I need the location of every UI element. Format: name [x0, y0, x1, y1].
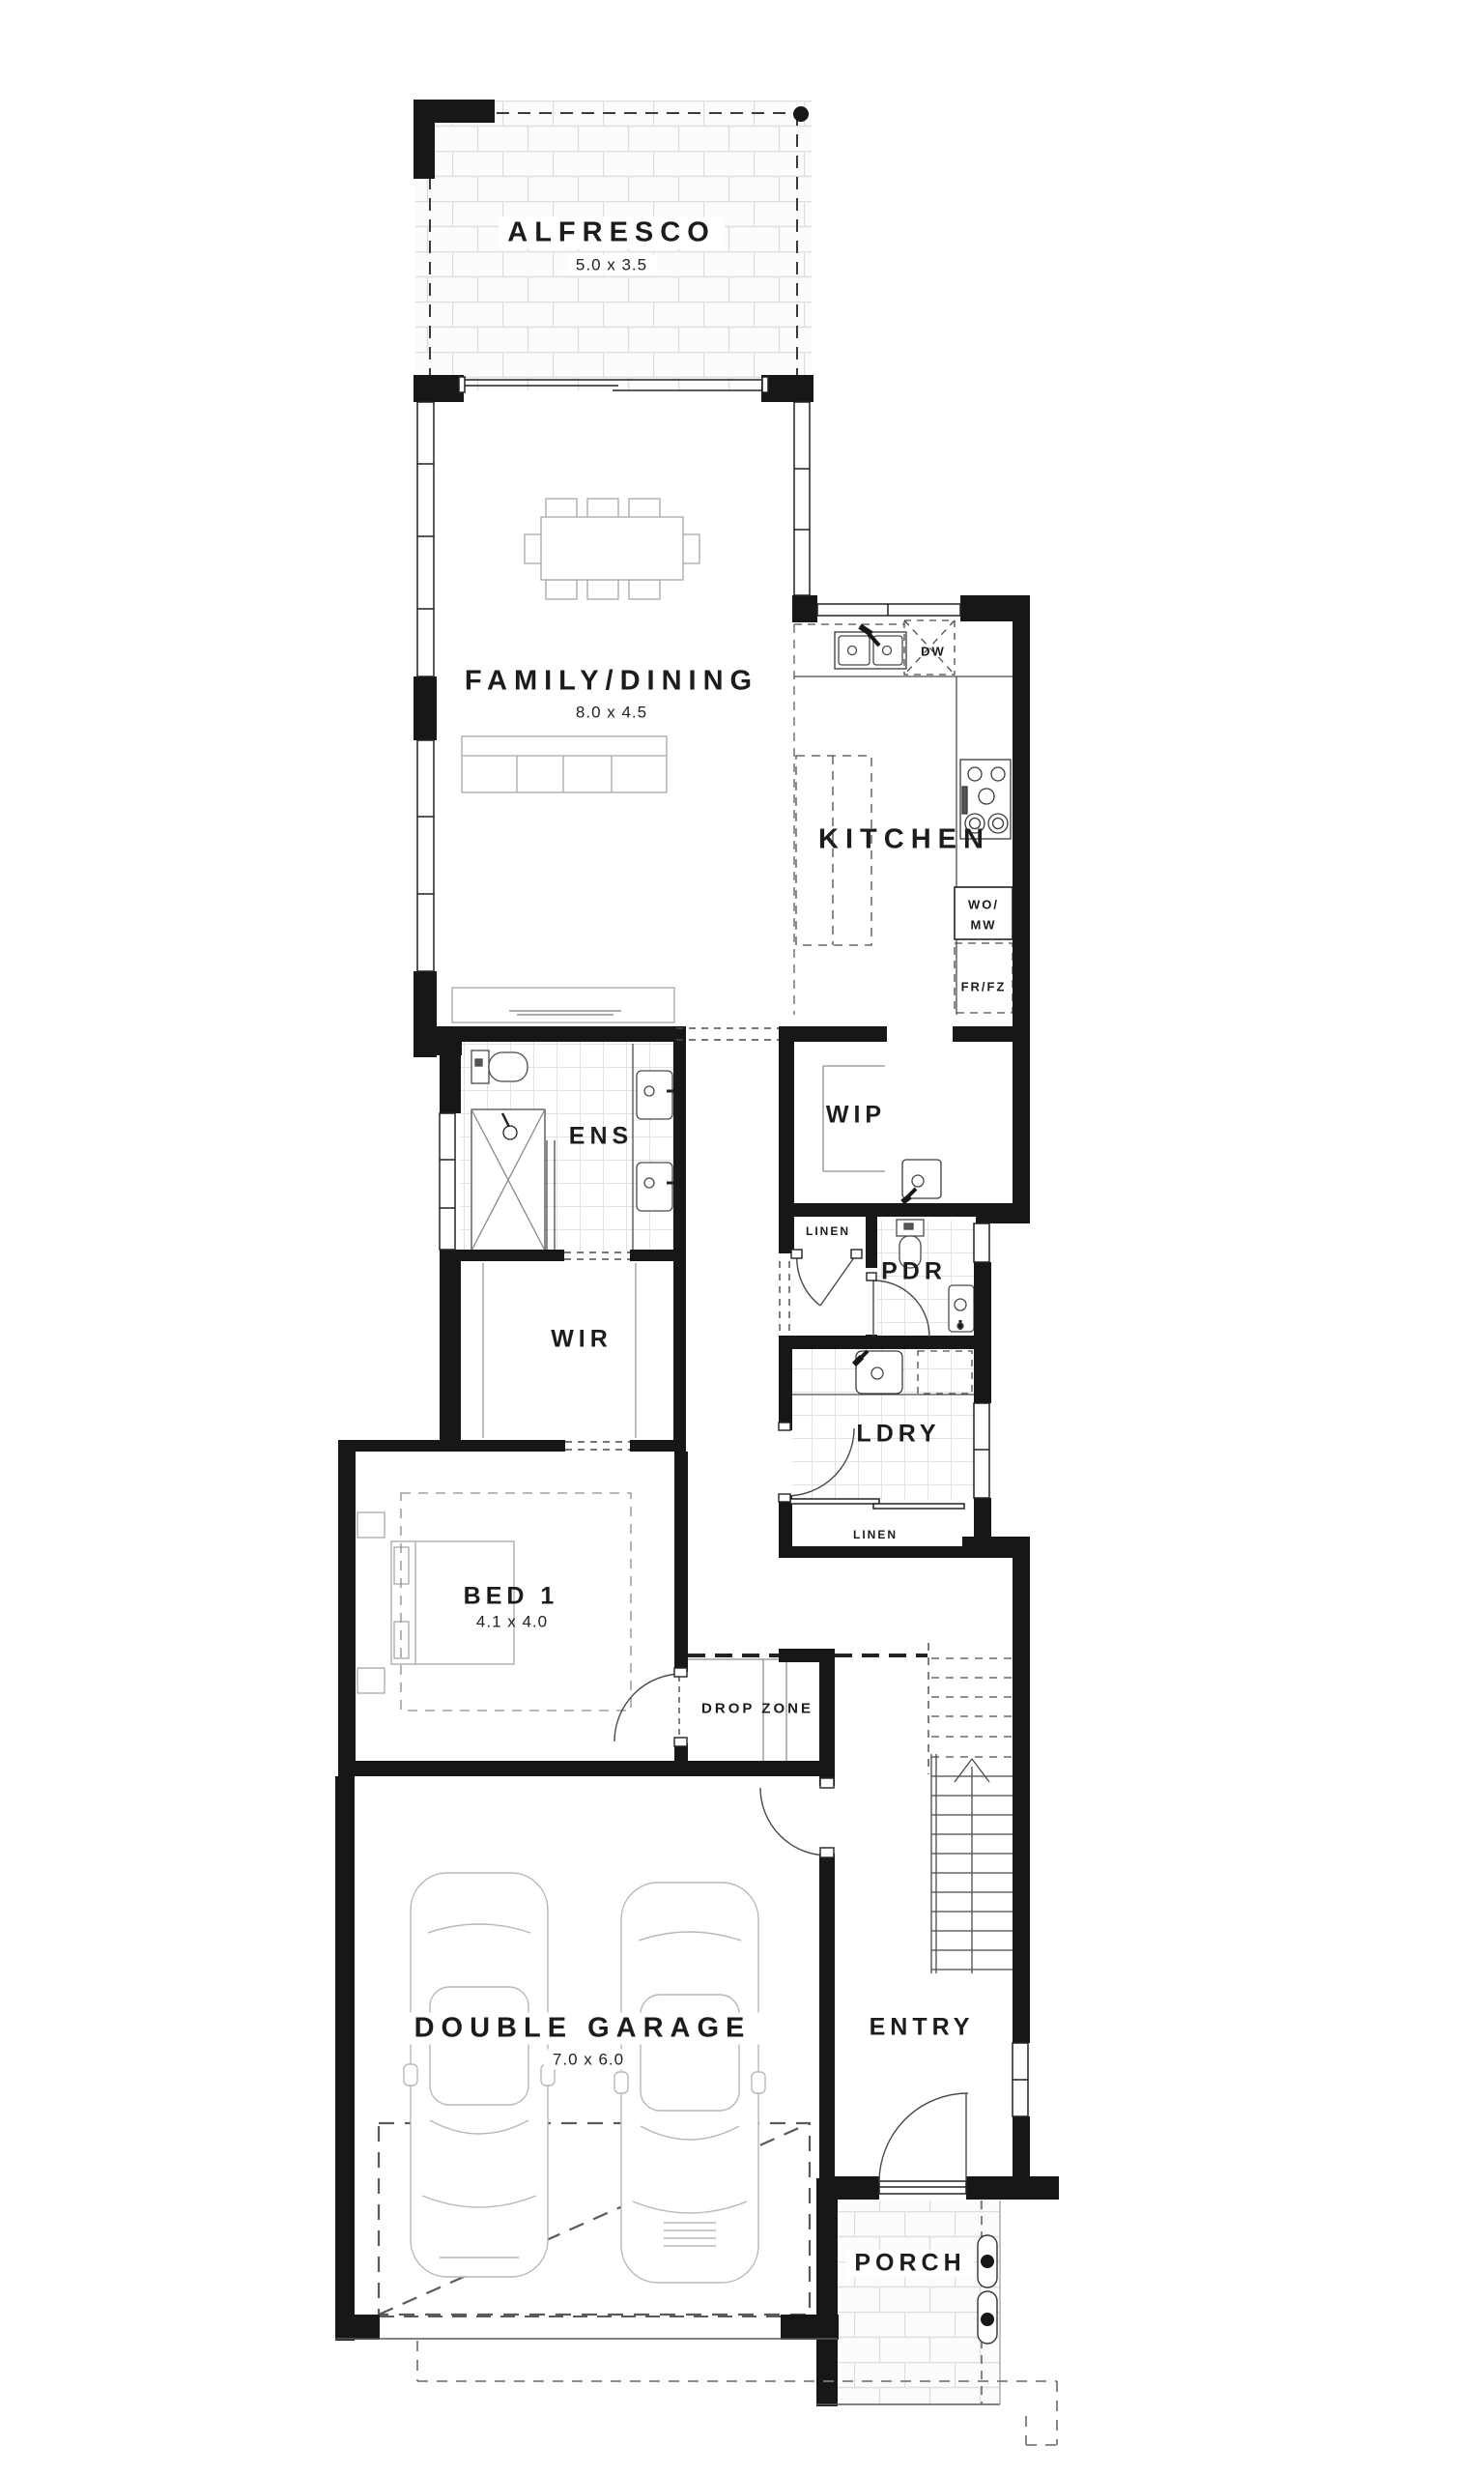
ldry-window [974, 1403, 989, 1498]
dining-table [525, 499, 699, 599]
car-2 [614, 1883, 765, 2283]
garage-entry-door [760, 1778, 834, 1857]
stair-stringer [931, 1754, 936, 1973]
ens-shower [471, 1109, 555, 1251]
floor-plan-page: ALFRESCO 5.0 x 3.5 FAMILY/DINING 8.0 x 4… [0, 0, 1484, 2474]
porch-paving [838, 2201, 1000, 2405]
stairs [931, 1658, 1013, 1973]
room-dims-alfresco: 5.0 x 3.5 [567, 255, 656, 275]
kitchen-fixtures [794, 620, 1013, 1015]
family-east-window [794, 402, 810, 595]
label-fridge: FR/FZ [961, 981, 1007, 993]
room-label-pdr: PDR [881, 1260, 947, 1284]
tv-cabinet [452, 988, 674, 1022]
room-label-ens: ENS [569, 1125, 633, 1149]
label-oven-line2: MW [970, 919, 996, 932]
room-label-family: FAMILY/DINING [465, 668, 758, 696]
sofa [462, 736, 667, 792]
label-linen-2: LINEN [853, 1529, 898, 1540]
kitchen-window [817, 604, 960, 616]
room-label-kitchen: KITCHEN [818, 826, 990, 854]
room-label-wip: WIP [826, 1104, 886, 1128]
room-label-entry: ENTRY [870, 2016, 975, 2040]
kitchen-tap-handle [860, 626, 871, 634]
bed1-door [614, 1668, 687, 1746]
wip-bench [823, 1066, 941, 1202]
fridge-space [955, 943, 1013, 1013]
room-label-wir: WIR [551, 1328, 613, 1352]
ens-toilet [471, 1050, 528, 1083]
car-mirror [752, 2072, 765, 2093]
hall-opening-dash [676, 1028, 779, 1040]
ldry-sliding-door [790, 1499, 964, 1509]
room-dims-bed1: 4.1 x 4.0 [476, 1614, 548, 1630]
family-west-window-2 [417, 740, 434, 971]
room-label-alfresco: ALFRESCO [499, 217, 725, 249]
wir-top-opening [564, 1252, 630, 1259]
label-oven-line1: WO/ [968, 899, 999, 911]
room-label-dropzone: DROP ZONE [701, 1702, 813, 1716]
car-mirror [404, 2064, 417, 2086]
room-label-garage: DOUBLE GARAGE [406, 2013, 760, 2045]
room-label-ldry: LDRY [856, 1423, 940, 1447]
pdr-window [974, 1223, 989, 1262]
room-label-porch: PORCH [845, 2250, 974, 2278]
wir-bottom-opening [565, 1442, 630, 1450]
alfresco-post [793, 106, 809, 122]
front-door-sill [879, 2181, 966, 2194]
label-linen-1: LINEN [806, 1225, 850, 1237]
car-1 [404, 1873, 555, 2277]
car-mirror [614, 2072, 628, 2093]
family-west-window-1 [417, 402, 434, 676]
stair-treads-dashed [931, 1658, 1013, 1757]
pdr-vanity [949, 1285, 974, 1332]
label-dishwasher: DW [921, 646, 946, 658]
corridor-opening-dash [780, 1261, 789, 1332]
entry-window [1013, 2043, 1028, 2116]
room-label-bed1: BED 1 [464, 1585, 559, 1609]
floor-plan-drawing [0, 0, 1484, 2474]
room-dims-family: 8.0 x 4.5 [576, 705, 647, 721]
kitchen-sink [835, 626, 906, 669]
ens-window [440, 1113, 455, 1250]
cars [404, 1873, 765, 2283]
linen-door [791, 1250, 862, 1306]
front-door [879, 2093, 968, 2182]
room-dims-garage: 7.0 x 6.0 [544, 2050, 633, 2070]
